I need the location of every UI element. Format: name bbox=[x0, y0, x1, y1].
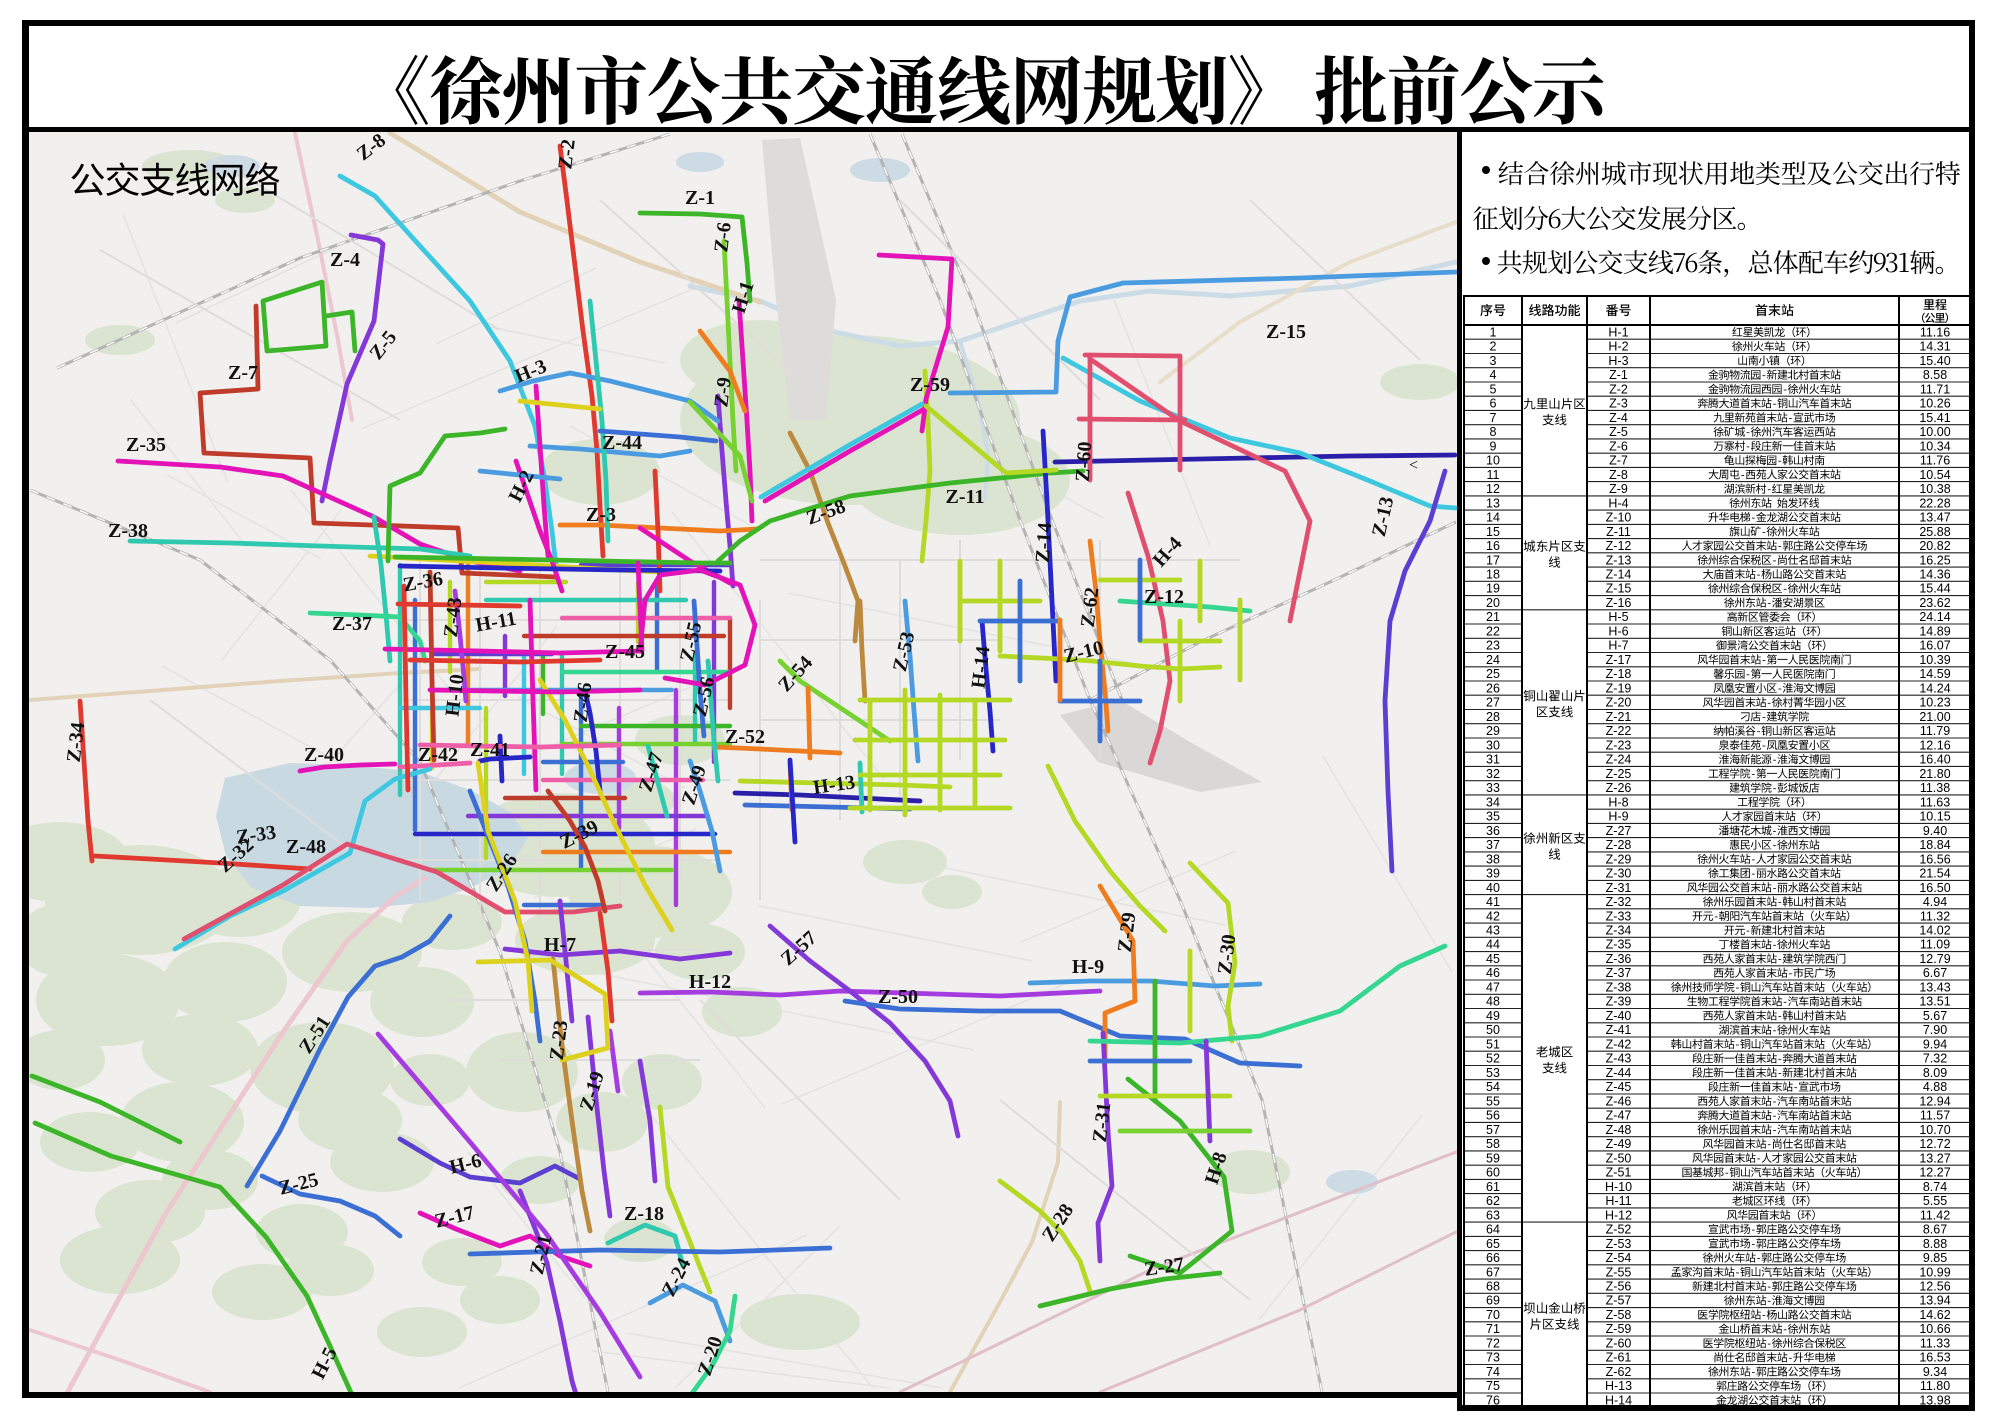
svg-text:25: 25 bbox=[1486, 667, 1500, 681]
svg-text:18.84: 18.84 bbox=[1919, 838, 1950, 852]
svg-text:26: 26 bbox=[1486, 681, 1500, 695]
svg-text:Z-1: Z-1 bbox=[685, 187, 715, 209]
svg-text:10.34: 10.34 bbox=[1919, 439, 1950, 453]
svg-text:8.09: 8.09 bbox=[1923, 1066, 1947, 1080]
svg-text:Z-42: Z-42 bbox=[1606, 1037, 1632, 1051]
svg-text:22.28: 22.28 bbox=[1919, 496, 1950, 510]
svg-text:45: 45 bbox=[1486, 952, 1500, 966]
svg-text:10.38: 10.38 bbox=[1919, 482, 1950, 496]
svg-text:11.79: 11.79 bbox=[1920, 724, 1950, 738]
svg-text:H-5: H-5 bbox=[1608, 610, 1628, 624]
svg-text:Z-15: Z-15 bbox=[1266, 321, 1306, 343]
svg-text:24: 24 bbox=[1486, 653, 1500, 667]
svg-text:15.44: 15.44 bbox=[1919, 582, 1950, 596]
svg-text:11.71: 11.71 bbox=[1920, 382, 1950, 396]
svg-text:H-11: H-11 bbox=[1605, 1194, 1631, 1208]
svg-text:Z-40: Z-40 bbox=[304, 744, 344, 766]
svg-text:Z-7: Z-7 bbox=[228, 362, 258, 384]
svg-text:18: 18 bbox=[1486, 568, 1500, 582]
svg-text:75: 75 bbox=[1486, 1379, 1500, 1393]
svg-text:Z-42: Z-42 bbox=[418, 744, 458, 766]
svg-text:13.98: 13.98 bbox=[1919, 1393, 1950, 1407]
svg-text:60: 60 bbox=[1486, 1166, 1500, 1180]
svg-text:Z-40: Z-40 bbox=[1606, 1009, 1632, 1023]
svg-text:Z-23: Z-23 bbox=[1606, 738, 1632, 752]
svg-text:Z-14: Z-14 bbox=[1032, 522, 1057, 563]
svg-text:11.38: 11.38 bbox=[1920, 781, 1950, 795]
svg-text:H-10: H-10 bbox=[1605, 1180, 1632, 1194]
svg-text:Z-30: Z-30 bbox=[1606, 867, 1632, 881]
svg-text:21.54: 21.54 bbox=[1919, 867, 1950, 881]
svg-text:4.88: 4.88 bbox=[1923, 1080, 1947, 1094]
svg-text:Z-14: Z-14 bbox=[1606, 568, 1632, 582]
svg-text:Z-62: Z-62 bbox=[1606, 1365, 1632, 1379]
svg-text:Z-4: Z-4 bbox=[1609, 411, 1628, 425]
svg-text:10: 10 bbox=[1486, 454, 1500, 468]
svg-text:Z-13: Z-13 bbox=[1606, 553, 1632, 567]
svg-text:Z-5: Z-5 bbox=[1609, 425, 1628, 439]
svg-text:Z-25: Z-25 bbox=[1606, 767, 1632, 781]
svg-text:24.14: 24.14 bbox=[1919, 610, 1950, 624]
svg-text:Z-47: Z-47 bbox=[1606, 1109, 1632, 1123]
svg-text:Z-46: Z-46 bbox=[1606, 1094, 1632, 1108]
svg-text:22: 22 bbox=[1486, 625, 1500, 639]
svg-text:1: 1 bbox=[1490, 325, 1497, 339]
svg-text:Z-16: Z-16 bbox=[1606, 596, 1632, 610]
svg-text:63: 63 bbox=[1486, 1208, 1500, 1222]
svg-text:Z-61: Z-61 bbox=[1606, 1351, 1632, 1365]
svg-text:11.42: 11.42 bbox=[1920, 1208, 1950, 1222]
svg-text:3: 3 bbox=[1490, 354, 1497, 368]
svg-text:54: 54 bbox=[1486, 1080, 1500, 1094]
svg-text:12.72: 12.72 bbox=[1919, 1137, 1950, 1151]
svg-text:Z-27: Z-27 bbox=[1606, 824, 1632, 838]
svg-text:Z-53: Z-53 bbox=[1606, 1237, 1632, 1251]
svg-text:21.80: 21.80 bbox=[1919, 767, 1950, 781]
svg-text:55: 55 bbox=[1486, 1094, 1500, 1108]
svg-text:28: 28 bbox=[1486, 710, 1500, 724]
svg-text:H-14: H-14 bbox=[1605, 1393, 1632, 1407]
svg-text:<: < bbox=[1409, 457, 1418, 474]
svg-text:16.50: 16.50 bbox=[1919, 881, 1950, 895]
svg-text:49: 49 bbox=[1486, 1009, 1500, 1023]
svg-text:68: 68 bbox=[1486, 1280, 1500, 1294]
svg-text:41: 41 bbox=[1486, 895, 1500, 909]
svg-text:Z-37: Z-37 bbox=[332, 613, 372, 635]
svg-text:16.40: 16.40 bbox=[1919, 753, 1950, 767]
svg-text:Z-7: Z-7 bbox=[1609, 454, 1628, 468]
svg-text:74: 74 bbox=[1486, 1365, 1500, 1379]
svg-text:10.23: 10.23 bbox=[1919, 696, 1950, 710]
svg-text:Z-50: Z-50 bbox=[878, 986, 918, 1008]
svg-text:10.70: 10.70 bbox=[1919, 1123, 1950, 1137]
svg-text:6: 6 bbox=[1490, 397, 1497, 411]
svg-text:12.56: 12.56 bbox=[1919, 1280, 1950, 1294]
svg-text:Z-33: Z-33 bbox=[1606, 909, 1632, 923]
svg-text:14: 14 bbox=[1486, 511, 1500, 525]
svg-text:32: 32 bbox=[1486, 767, 1500, 781]
svg-text:Z-44: Z-44 bbox=[1606, 1066, 1632, 1080]
svg-text:40: 40 bbox=[1486, 881, 1500, 895]
svg-text:Z-32: Z-32 bbox=[1606, 895, 1632, 909]
svg-text:64: 64 bbox=[1486, 1223, 1500, 1237]
svg-text:50: 50 bbox=[1486, 1023, 1500, 1037]
svg-text:Z-50: Z-50 bbox=[1606, 1151, 1632, 1165]
svg-text:13.27: 13.27 bbox=[1919, 1151, 1950, 1165]
svg-text:70: 70 bbox=[1486, 1308, 1500, 1322]
svg-text:21.00: 21.00 bbox=[1919, 710, 1950, 724]
svg-text:Z-41: Z-41 bbox=[1606, 1023, 1632, 1037]
svg-text:12: 12 bbox=[1486, 482, 1500, 496]
svg-text:Z-24: Z-24 bbox=[1606, 753, 1632, 767]
svg-text:12.94: 12.94 bbox=[1919, 1094, 1950, 1108]
svg-text:12.27: 12.27 bbox=[1919, 1166, 1950, 1180]
svg-text:62: 62 bbox=[1486, 1194, 1500, 1208]
svg-text:16: 16 bbox=[1486, 539, 1500, 553]
svg-text:58: 58 bbox=[1486, 1137, 1500, 1151]
svg-text:14.31: 14.31 bbox=[1919, 340, 1950, 354]
svg-text:11.63: 11.63 bbox=[1920, 795, 1950, 809]
svg-text:69: 69 bbox=[1486, 1294, 1500, 1308]
svg-text:H-12: H-12 bbox=[1605, 1208, 1632, 1222]
svg-text:Z-3: Z-3 bbox=[1609, 397, 1628, 411]
svg-text:15: 15 bbox=[1486, 525, 1500, 539]
svg-text:33: 33 bbox=[1486, 781, 1500, 795]
svg-text:73: 73 bbox=[1486, 1351, 1500, 1365]
svg-text:Z-45: Z-45 bbox=[1606, 1080, 1632, 1094]
svg-text:37: 37 bbox=[1486, 838, 1500, 852]
svg-text:9.94: 9.94 bbox=[1923, 1037, 1947, 1051]
svg-text:48: 48 bbox=[1486, 995, 1500, 1009]
svg-text:13.51: 13.51 bbox=[1919, 995, 1950, 1009]
svg-text:7.32: 7.32 bbox=[1923, 1052, 1947, 1066]
svg-text:44: 44 bbox=[1486, 938, 1500, 952]
svg-text:Z-11: Z-11 bbox=[946, 486, 985, 508]
svg-text:19: 19 bbox=[1486, 582, 1500, 596]
svg-text:Z-41: Z-41 bbox=[470, 739, 510, 761]
svg-text:14.36: 14.36 bbox=[1919, 568, 1950, 582]
svg-text:5.55: 5.55 bbox=[1923, 1194, 1947, 1208]
svg-text:H-7: H-7 bbox=[1608, 639, 1628, 653]
svg-text:14.89: 14.89 bbox=[1919, 625, 1950, 639]
svg-text:25.88: 25.88 bbox=[1919, 525, 1950, 539]
svg-text:42: 42 bbox=[1486, 909, 1500, 923]
svg-text:11.80: 11.80 bbox=[1920, 1379, 1950, 1393]
svg-text:8.58: 8.58 bbox=[1923, 368, 1947, 382]
svg-text:6.67: 6.67 bbox=[1923, 966, 1947, 980]
svg-text:20: 20 bbox=[1486, 596, 1500, 610]
svg-text:Z-35: Z-35 bbox=[126, 434, 166, 456]
svg-text:Z-29: Z-29 bbox=[1606, 852, 1632, 866]
svg-text:Z-2: Z-2 bbox=[554, 138, 579, 170]
svg-text:65: 65 bbox=[1486, 1237, 1500, 1251]
svg-text:16.25: 16.25 bbox=[1919, 553, 1950, 567]
svg-text:Z-45: Z-45 bbox=[605, 641, 645, 663]
svg-text:Z-21: Z-21 bbox=[1606, 710, 1632, 724]
svg-text:23.62: 23.62 bbox=[1919, 596, 1950, 610]
svg-text:66: 66 bbox=[1486, 1251, 1500, 1265]
svg-text:Z-43: Z-43 bbox=[1606, 1052, 1632, 1066]
svg-text:8: 8 bbox=[1490, 425, 1497, 439]
svg-text:Z-20: Z-20 bbox=[1606, 696, 1632, 710]
svg-text:34: 34 bbox=[1486, 795, 1500, 809]
svg-text:8.67: 8.67 bbox=[1923, 1223, 1947, 1237]
svg-text:11: 11 bbox=[1487, 468, 1500, 482]
svg-text:14.02: 14.02 bbox=[1919, 924, 1950, 938]
svg-text:36: 36 bbox=[1486, 824, 1500, 838]
svg-text:13.43: 13.43 bbox=[1919, 981, 1950, 995]
svg-text:Z-28: Z-28 bbox=[1606, 838, 1632, 852]
svg-text:Z-9: Z-9 bbox=[1609, 482, 1628, 496]
svg-text:52: 52 bbox=[1486, 1052, 1500, 1066]
svg-text:Z-39: Z-39 bbox=[1606, 995, 1632, 1009]
svg-text:Z-38: Z-38 bbox=[1606, 981, 1632, 995]
svg-text:H-9: H-9 bbox=[1072, 956, 1104, 978]
svg-text:Z-1: Z-1 bbox=[1609, 368, 1628, 382]
svg-text:Z-6: Z-6 bbox=[1609, 439, 1628, 453]
svg-text:H-6: H-6 bbox=[1608, 625, 1628, 639]
svg-text:11.57: 11.57 bbox=[1920, 1109, 1950, 1123]
svg-text:14.24: 14.24 bbox=[1919, 681, 1950, 695]
svg-text:H-13: H-13 bbox=[1605, 1379, 1632, 1393]
svg-text:Z-37: Z-37 bbox=[1606, 966, 1632, 980]
svg-text:10.15: 10.15 bbox=[1919, 810, 1950, 824]
svg-text:53: 53 bbox=[1486, 1066, 1500, 1080]
svg-text:13.47: 13.47 bbox=[1919, 511, 1950, 525]
svg-text:Z-35: Z-35 bbox=[1606, 938, 1632, 952]
svg-text:Z-59: Z-59 bbox=[910, 374, 950, 396]
svg-text:Z-59: Z-59 bbox=[1606, 1322, 1632, 1336]
svg-text:Z-48: Z-48 bbox=[286, 836, 326, 858]
svg-text:Z-56: Z-56 bbox=[1606, 1280, 1632, 1294]
svg-text:14.59: 14.59 bbox=[1919, 667, 1950, 681]
svg-text:H-8: H-8 bbox=[1608, 795, 1628, 809]
svg-text:46: 46 bbox=[1486, 966, 1500, 980]
svg-text:76: 76 bbox=[1486, 1393, 1500, 1407]
svg-text:12.16: 12.16 bbox=[1919, 738, 1950, 752]
svg-text:H-4: H-4 bbox=[1608, 496, 1628, 510]
svg-text:9: 9 bbox=[1490, 439, 1497, 453]
svg-text:7: 7 bbox=[1490, 411, 1497, 425]
svg-text:Z-10: Z-10 bbox=[1606, 511, 1632, 525]
svg-text:10.66: 10.66 bbox=[1919, 1322, 1950, 1336]
svg-text:4.94: 4.94 bbox=[1923, 895, 1947, 909]
svg-text:11.33: 11.33 bbox=[1920, 1337, 1950, 1351]
svg-text:38: 38 bbox=[1486, 852, 1500, 866]
svg-text:Z-3: Z-3 bbox=[586, 504, 616, 526]
svg-text:Z-49: Z-49 bbox=[1606, 1137, 1632, 1151]
svg-text:Z-58: Z-58 bbox=[1606, 1308, 1632, 1322]
svg-text:15.40: 15.40 bbox=[1919, 354, 1950, 368]
svg-text:16.56: 16.56 bbox=[1919, 852, 1950, 866]
svg-text:Z-31: Z-31 bbox=[1606, 881, 1632, 895]
svg-text:Z-2: Z-2 bbox=[1609, 382, 1628, 396]
svg-text:10.99: 10.99 bbox=[1919, 1265, 1950, 1279]
svg-text:H-7: H-7 bbox=[544, 934, 576, 956]
svg-text:Z-12: Z-12 bbox=[1606, 539, 1632, 553]
svg-text:11.32: 11.32 bbox=[1920, 909, 1950, 923]
svg-text:59: 59 bbox=[1486, 1151, 1500, 1165]
svg-text:43: 43 bbox=[1486, 924, 1500, 938]
svg-text:4: 4 bbox=[1490, 368, 1497, 382]
svg-text:13.94: 13.94 bbox=[1919, 1294, 1950, 1308]
svg-text:10.00: 10.00 bbox=[1919, 425, 1950, 439]
svg-text:H-12: H-12 bbox=[689, 971, 731, 993]
svg-text:Z-15: Z-15 bbox=[1606, 582, 1632, 596]
svg-text:Z-22: Z-22 bbox=[1606, 724, 1632, 738]
svg-text:29: 29 bbox=[1486, 724, 1500, 738]
svg-text:11.16: 11.16 bbox=[1920, 325, 1950, 339]
svg-text:9.40: 9.40 bbox=[1923, 824, 1947, 838]
svg-text:67: 67 bbox=[1486, 1265, 1500, 1279]
svg-text:Z-17: Z-17 bbox=[1606, 653, 1632, 667]
svg-text:20.82: 20.82 bbox=[1919, 539, 1950, 553]
svg-text:15.41: 15.41 bbox=[1919, 411, 1950, 425]
svg-text:Z-52: Z-52 bbox=[1606, 1223, 1632, 1237]
svg-text:13: 13 bbox=[1486, 496, 1500, 510]
svg-text:61: 61 bbox=[1486, 1180, 1500, 1194]
svg-text:Z-54: Z-54 bbox=[1606, 1251, 1632, 1265]
svg-text:Z-48: Z-48 bbox=[1606, 1123, 1632, 1137]
svg-text:17: 17 bbox=[1486, 553, 1500, 567]
svg-text:27: 27 bbox=[1486, 696, 1500, 710]
svg-text:71: 71 bbox=[1486, 1322, 1500, 1336]
svg-text:16.53: 16.53 bbox=[1919, 1351, 1950, 1365]
svg-text:9.34: 9.34 bbox=[1923, 1365, 1947, 1379]
svg-text:5: 5 bbox=[1490, 382, 1497, 396]
svg-text:Z-19: Z-19 bbox=[1606, 681, 1632, 695]
svg-text:Z-6: Z-6 bbox=[710, 221, 735, 253]
svg-text:Z-12: Z-12 bbox=[1144, 586, 1184, 608]
svg-text:Z-38: Z-38 bbox=[108, 520, 148, 542]
svg-text:Z-60: Z-60 bbox=[1072, 441, 1097, 482]
svg-text:Z-57: Z-57 bbox=[1606, 1294, 1632, 1308]
svg-text:51: 51 bbox=[1486, 1037, 1500, 1051]
svg-text:39: 39 bbox=[1486, 867, 1500, 881]
svg-text:Z-26: Z-26 bbox=[1606, 781, 1632, 795]
svg-text:10.39: 10.39 bbox=[1919, 653, 1950, 667]
svg-text:31: 31 bbox=[1486, 753, 1500, 767]
svg-text:Z-51: Z-51 bbox=[1606, 1166, 1632, 1180]
svg-text:23: 23 bbox=[1486, 639, 1500, 653]
svg-text:Z-9: Z-9 bbox=[710, 376, 735, 408]
svg-text:H-3: H-3 bbox=[1608, 354, 1628, 368]
svg-text:21: 21 bbox=[1486, 610, 1500, 624]
svg-text:11.76: 11.76 bbox=[1920, 454, 1950, 468]
svg-text:Z-52: Z-52 bbox=[725, 726, 765, 748]
svg-text:10.54: 10.54 bbox=[1919, 468, 1950, 482]
svg-text:Z-4: Z-4 bbox=[330, 249, 360, 271]
svg-text:8.74: 8.74 bbox=[1923, 1180, 1947, 1194]
svg-text:47: 47 bbox=[1486, 981, 1500, 995]
svg-text:56: 56 bbox=[1486, 1109, 1500, 1123]
svg-text:9.85: 9.85 bbox=[1923, 1251, 1947, 1265]
svg-text:H-1: H-1 bbox=[1608, 325, 1628, 339]
svg-text:Z-36: Z-36 bbox=[1606, 952, 1632, 966]
svg-text:30: 30 bbox=[1486, 738, 1500, 752]
svg-text:H-9: H-9 bbox=[1608, 810, 1628, 824]
svg-text:35: 35 bbox=[1486, 810, 1500, 824]
svg-text:7.90: 7.90 bbox=[1923, 1023, 1947, 1037]
svg-text:Z-8: Z-8 bbox=[1609, 468, 1628, 482]
svg-text:Z-55: Z-55 bbox=[1606, 1265, 1632, 1279]
svg-text:10.26: 10.26 bbox=[1919, 397, 1950, 411]
svg-text:14.62: 14.62 bbox=[1919, 1308, 1950, 1322]
svg-text:72: 72 bbox=[1486, 1337, 1500, 1351]
svg-text:Z-34: Z-34 bbox=[1606, 924, 1632, 938]
svg-text:Z-44: Z-44 bbox=[602, 432, 642, 454]
svg-text:2: 2 bbox=[1490, 340, 1497, 354]
svg-text:16.07: 16.07 bbox=[1919, 639, 1950, 653]
svg-text:12.79: 12.79 bbox=[1919, 952, 1950, 966]
svg-text:Z-60: Z-60 bbox=[1606, 1337, 1632, 1351]
svg-text:5.67: 5.67 bbox=[1923, 1009, 1947, 1023]
svg-text:Z-18: Z-18 bbox=[624, 1203, 664, 1225]
svg-text:11.09: 11.09 bbox=[1920, 938, 1950, 952]
svg-text:Z-11: Z-11 bbox=[1606, 525, 1631, 539]
svg-text:57: 57 bbox=[1486, 1123, 1500, 1137]
svg-text:8.88: 8.88 bbox=[1923, 1237, 1947, 1251]
svg-text:Z-18: Z-18 bbox=[1606, 667, 1632, 681]
svg-text:H-2: H-2 bbox=[1608, 340, 1628, 354]
